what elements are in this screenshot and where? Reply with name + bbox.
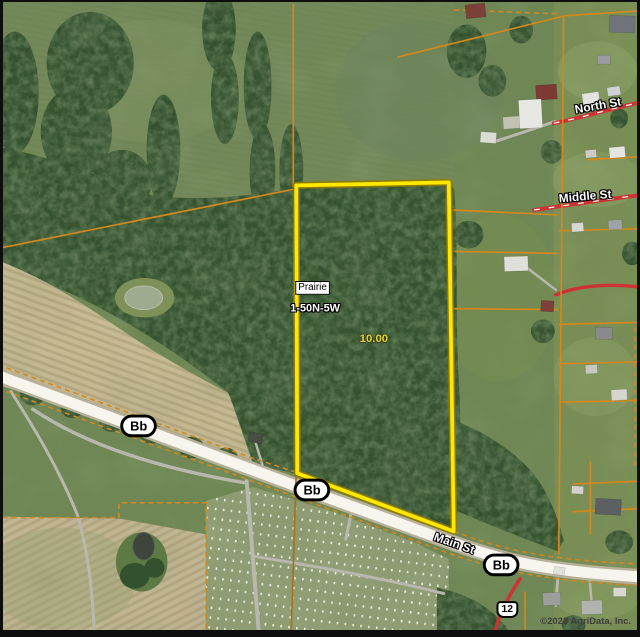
route-badge-bb-center: Bb — [294, 479, 331, 502]
aerial-map-canvas[interactable] — [3, 2, 637, 630]
route-badge-bb-west: Bb — [120, 415, 157, 438]
parcel-township-label: 1-50N-5W — [290, 303, 340, 315]
parcel-acreage-label: 10.00 — [360, 333, 389, 345]
parcel-map-viewport[interactable]: Prairie 1-50N-5W 10.00 North St Middle S… — [0, 0, 640, 637]
route-badge-bb-east: Bb — [483, 554, 520, 577]
map-stage: Prairie 1-50N-5W 10.00 North St Middle S… — [3, 2, 637, 630]
map-attribution: ©2023 AgriData, Inc. — [540, 616, 631, 627]
route-badge-12: 12 — [496, 601, 517, 617]
parcel-name-label: Prairie — [295, 281, 330, 295]
